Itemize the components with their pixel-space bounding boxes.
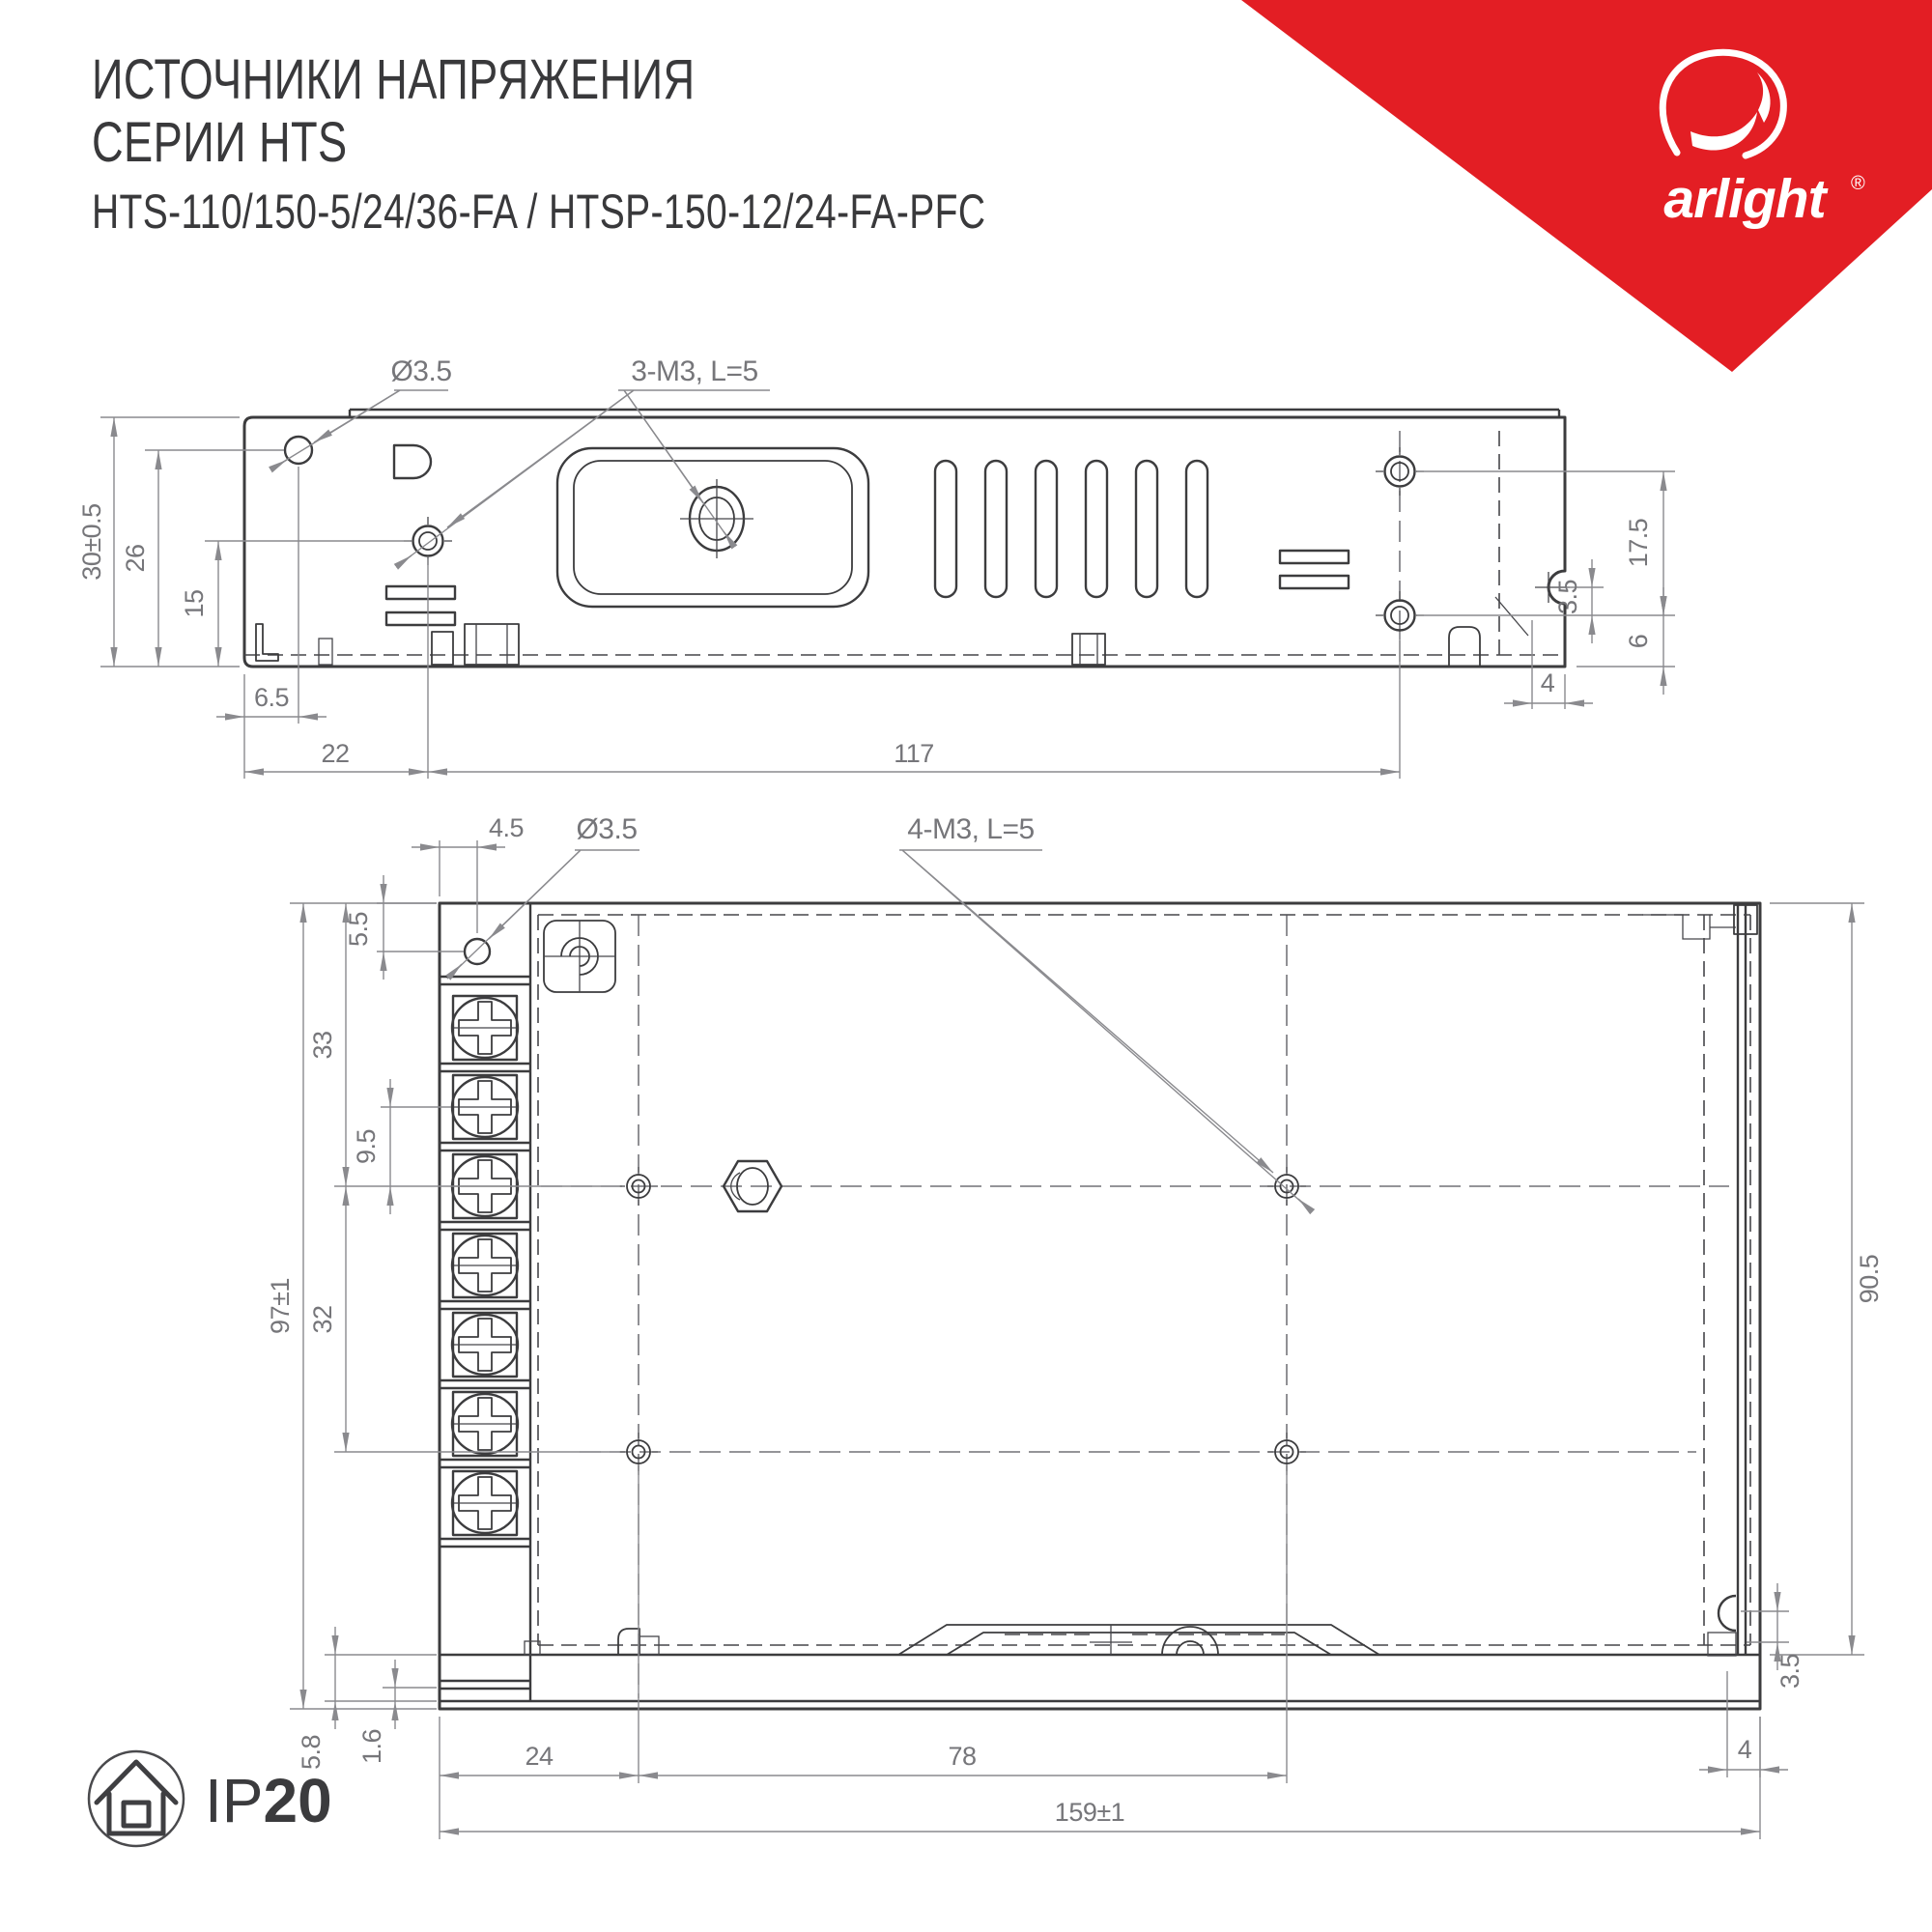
- top-bottom-details: [525, 1625, 1379, 1655]
- side-vent-slots: [935, 461, 1207, 597]
- dim-4-5: 4.5: [489, 813, 524, 842]
- dim-6: 6: [1624, 635, 1653, 649]
- corner-ribbon: [1241, 0, 1932, 372]
- terminal-screw-1: [452, 996, 518, 1060]
- terminal-screw-4: [452, 1234, 518, 1297]
- top-dimensions: 4.5 5.5 33 9.5 97±1 32: [266, 813, 1884, 1839]
- top-screws-label: 4-M3, L=5: [907, 813, 1034, 845]
- dim-22: 22: [321, 739, 349, 768]
- dim-6-5: 6.5: [254, 683, 289, 712]
- brand-wordmark: arlight: [1663, 168, 1828, 230]
- top-inner-walls: [440, 903, 1760, 1701]
- datasheet-page: ИСТОЧНИКИ НАПРЯЖЕНИЯ СЕРИИ HTS HTS-110/1…: [0, 0, 1932, 1932]
- side-dimensions: 30±0.5 26 15 6.5 22 117 17.5: [77, 417, 1675, 779]
- dim-4: 4: [1541, 668, 1555, 697]
- top-hole-label: Ø3.5: [576, 813, 637, 845]
- ip-rating-badge: IP20: [89, 1751, 332, 1846]
- dim-159: 159±1: [1055, 1798, 1124, 1827]
- brand-corner: arlight ®: [1241, 0, 1932, 372]
- top-hidden-outline: [538, 915, 1750, 1645]
- top-mount-hole: [465, 939, 490, 964]
- dim-1-6: 1.6: [357, 1729, 386, 1764]
- side-bottom-details: [256, 624, 1480, 667]
- technical-drawing: arlight ®: [0, 0, 1932, 1932]
- top-view: Ø3.5 4-M3, L=5 4.5 5.5 33 9.5: [266, 813, 1884, 1839]
- side-recessed-panel: [557, 448, 868, 607]
- side-view: Ø3.5 3-M3, L=5 30±0.5 26 15 6.5 22: [77, 355, 1675, 779]
- dim-33: 33: [308, 1031, 337, 1059]
- dim-3-5: 3.5: [1553, 580, 1582, 614]
- top-corner-details: [1642, 905, 1757, 1656]
- dim-24: 24: [525, 1742, 554, 1771]
- side-m3-screw: [404, 517, 452, 565]
- terminal-screw-7: [452, 1471, 518, 1535]
- dim-90-5: 90.5: [1855, 1255, 1884, 1304]
- dim-17-5: 17.5: [1624, 519, 1653, 568]
- top-centerlines: [541, 915, 1729, 1698]
- dim-5-5: 5.5: [344, 912, 373, 947]
- dim-117: 117: [894, 739, 934, 768]
- dim-5-8: 5.8: [297, 1735, 326, 1770]
- house-icon: [97, 1762, 176, 1833]
- side-mount-hole: [285, 437, 312, 464]
- potentiometer-symbol: [544, 921, 615, 992]
- terminal-screw-5: [452, 1313, 518, 1377]
- dim-26: 26: [121, 544, 150, 572]
- dim-32: 32: [308, 1305, 337, 1333]
- dim-9-5: 9.5: [352, 1129, 381, 1164]
- dim-right-3-5: 3.5: [1776, 1654, 1804, 1689]
- registered-mark: ®: [1851, 173, 1865, 194]
- dim-30: 30±0.5: [77, 503, 106, 580]
- side-hole-label: Ø3.5: [390, 355, 451, 387]
- dim-97: 97±1: [266, 1278, 295, 1334]
- dim-15: 15: [180, 589, 209, 617]
- terminal-screw-6: [452, 1392, 518, 1456]
- dim-78: 78: [948, 1742, 976, 1771]
- terminal-screw-2: [452, 1075, 518, 1139]
- ip-rating-text: IP20: [205, 1766, 332, 1835]
- terminal-block: [440, 903, 530, 1701]
- dim-right-4: 4: [1738, 1735, 1752, 1764]
- side-d-hole: [394, 445, 431, 478]
- side-screws-label: 3-M3, L=5: [631, 355, 757, 387]
